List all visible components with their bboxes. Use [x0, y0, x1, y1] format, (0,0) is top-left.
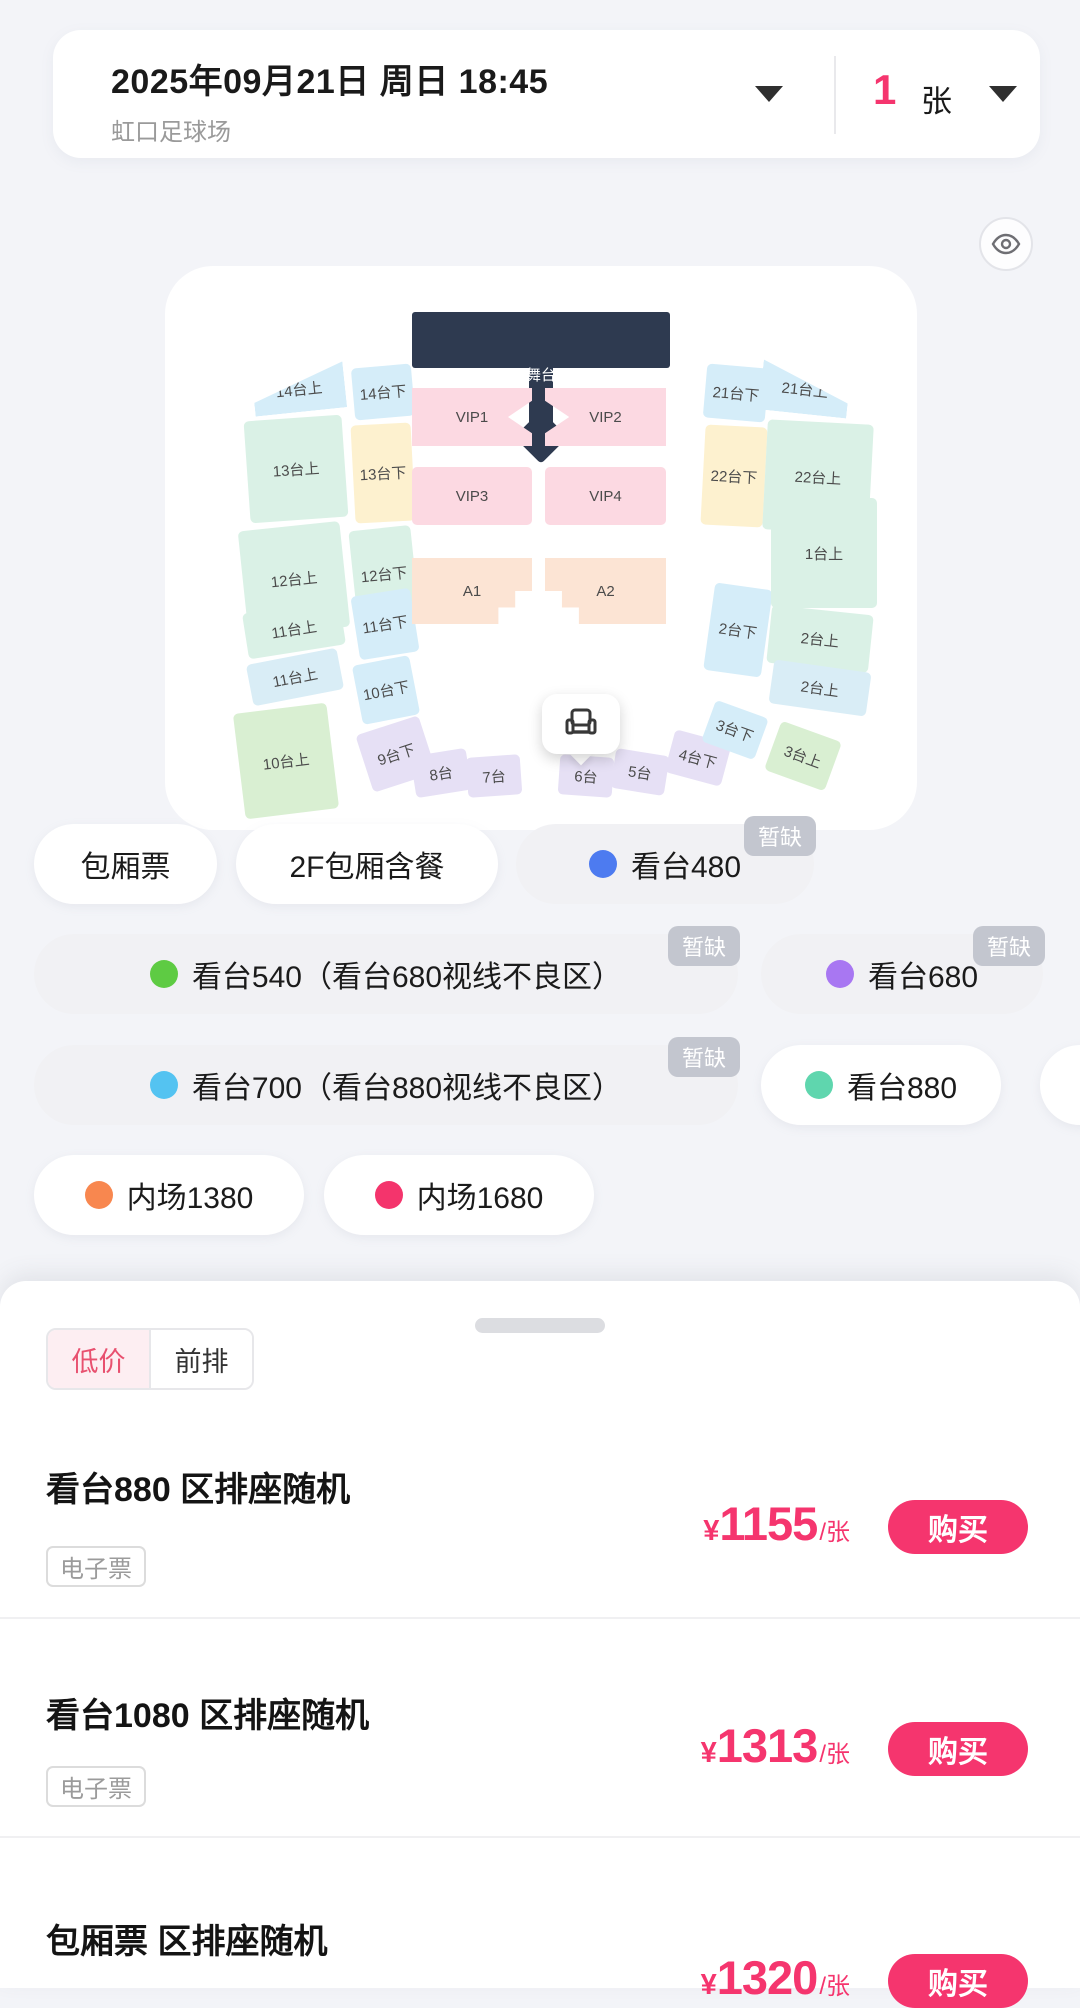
buy-button[interactable]: 购买	[888, 1500, 1028, 1554]
price-unit: /张	[819, 1966, 850, 2001]
listing-title: 看台1080 区排座随机	[46, 1688, 369, 1737]
price-tier-dot-icon	[805, 1071, 833, 1099]
buy-button[interactable]: 购买	[888, 1954, 1028, 2008]
price-tier-dot-icon	[85, 1181, 113, 1209]
seat-section-label: 2台下	[718, 617, 759, 643]
seat-section-s6[interactable]: 6台	[558, 754, 615, 798]
seat-section-s13d[interactable]: 13台下	[350, 422, 415, 523]
listing-price: ¥1313/张	[701, 1718, 850, 1773]
seat-section-s10d[interactable]: 10台下	[352, 655, 420, 725]
sold-out-badge: 暂缺	[668, 926, 740, 966]
ticket-page: { "header": { "date": "2025年09月21日 周日 18…	[0, 0, 1080, 1988]
sort-tab-0[interactable]: 低价	[48, 1330, 149, 1388]
listing-divider	[0, 1836, 1080, 1838]
seat-section-s2d[interactable]: 2台下	[703, 582, 773, 677]
seat-section-s5[interactable]: 5台	[610, 748, 670, 796]
selected-section-tooltip[interactable]	[542, 694, 620, 754]
seat-section-a1[interactable]: A1	[412, 558, 532, 624]
venue-name: 虹口足球场	[111, 112, 231, 147]
price-value: 1155	[719, 1496, 817, 1551]
session-header-card: 2025年09月21日 周日 18:45 虹口足球场 1 张	[53, 30, 1040, 158]
session-date[interactable]: 2025年09月21日 周日 18:45	[111, 54, 548, 103]
price-tier-dot-icon	[150, 1071, 178, 1099]
seat-map-card: 舞台 14台上13台上12台上11台上11台上10台上14台下13台下12台下1…	[165, 266, 917, 830]
quantity-dropdown-caret-icon[interactable]	[989, 86, 1017, 102]
seat-section-label: 14台下	[359, 380, 407, 405]
seat-section-vip3[interactable]: VIP3	[412, 467, 532, 525]
seat-section-label: 1台上	[805, 543, 843, 564]
currency-symbol: ¥	[703, 1515, 719, 1548]
sort-tab-1[interactable]: 前排	[149, 1330, 252, 1388]
sold-out-badge: 暂缺	[668, 1037, 740, 1077]
stage-block	[412, 312, 670, 368]
sold-out-badge: 暂缺	[744, 816, 816, 856]
seat-section-label: 12台上	[270, 566, 319, 592]
seat-section-a2[interactable]: A2	[545, 558, 666, 624]
seat-section-label: 2台上	[800, 627, 840, 652]
listing-title: 看台880 区排座随机	[46, 1462, 350, 1511]
eticket-tag: 电子票	[46, 1546, 146, 1587]
category-chip-label: 包厢票	[81, 842, 171, 886]
seat-section-s11d[interactable]: 11台下	[350, 588, 419, 661]
price-tier-dot-icon	[150, 960, 178, 988]
seat-section-label: 11台上	[271, 662, 320, 691]
seat-icon	[563, 707, 599, 741]
seat-section-label: 8台	[428, 761, 454, 785]
seat-section-label: 5台	[627, 760, 653, 784]
buy-button[interactable]: 购买	[888, 1722, 1028, 1776]
category-chip-label: 看台540（看台680视线不良区）	[192, 952, 622, 996]
sheet-drag-handle[interactable]	[475, 1318, 605, 1333]
seat-section-s13u[interactable]: 13台上	[244, 415, 349, 524]
seat-section-label: 21台下	[712, 381, 760, 406]
listing-title: 包厢票 区排座随机	[46, 1914, 327, 1963]
seat-section-label: 3台下	[713, 714, 756, 747]
seat-section-vip4[interactable]: VIP4	[545, 467, 666, 525]
listing-price: ¥1155/张	[703, 1496, 850, 1551]
category-chip-r2c2[interactable]: 看台680暂缺	[761, 934, 1043, 1014]
seat-section-s21u[interactable]: 21台上	[759, 360, 852, 419]
category-chip-r1c2[interactable]: 2F包厢含餐	[236, 824, 498, 904]
seat-section-s22d[interactable]: 22台下	[700, 424, 767, 527]
seat-section-label: 10台下	[361, 675, 411, 705]
listing-divider	[0, 1617, 1080, 1619]
seat-section-s3u[interactable]: 3台上	[764, 721, 842, 792]
seat-section-vip2[interactable]: VIP2	[545, 388, 666, 446]
currency-symbol: ¥	[701, 1969, 717, 2002]
price-tier-dot-icon	[589, 850, 617, 878]
price-tier-dot-icon	[826, 960, 854, 988]
seat-section-label: VIP2	[589, 409, 622, 426]
session-dropdown-caret-icon[interactable]	[755, 86, 783, 102]
category-chip-label: 看台880	[847, 1063, 957, 1107]
listing-price: ¥1320/张	[701, 1950, 850, 2005]
category-chip-r2c1[interactable]: 看台540（看台680视线不良区）暂缺	[34, 934, 738, 1014]
price-value: 1313	[717, 1718, 818, 1773]
category-chip-label: 看台700（看台880视线不良区）	[192, 1063, 622, 1107]
seat-section-s8[interactable]: 8台	[410, 748, 472, 798]
seat-section-label: VIP4	[589, 488, 622, 505]
seat-section-label: 11台上	[270, 615, 318, 643]
listings-sheet: 低价前排 看台880 区排座随机电子票¥1155/张购买看台1080 区排座随机…	[0, 1281, 1080, 1988]
seat-section-label: 3台上	[781, 740, 824, 773]
seat-section-label: 22台上	[794, 465, 842, 488]
ticket-quantity-unit: 张	[921, 76, 952, 121]
seat-section-label: 10台上	[262, 748, 311, 775]
seat-section-s10u[interactable]: 10台上	[233, 703, 339, 820]
category-chip-r3c3[interactable]	[1040, 1045, 1080, 1125]
seat-section-s21d[interactable]: 21台下	[703, 363, 769, 422]
price-value: 1320	[717, 1950, 818, 2005]
category-chip-r4c2[interactable]: 内场1680	[324, 1155, 594, 1235]
category-chip-r3c1[interactable]: 看台700（看台880视线不良区）暂缺	[34, 1045, 738, 1125]
ticket-quantity[interactable]: 1	[873, 66, 896, 114]
seat-section-s7[interactable]: 7台	[466, 754, 523, 798]
seat-section-label: 7台	[482, 765, 507, 788]
category-chip-r1c1[interactable]: 包厢票	[34, 824, 217, 904]
seat-section-s14d[interactable]: 14台下	[351, 363, 415, 420]
seat-section-label: A2	[596, 583, 614, 600]
price-unit: /张	[819, 1512, 850, 1547]
price-tier-dot-icon	[375, 1181, 403, 1209]
seat-section-label: 2台上	[800, 675, 841, 701]
sort-tabs: 低价前排	[46, 1328, 254, 1390]
eye-icon	[991, 233, 1021, 255]
stage-label: 舞台	[511, 364, 571, 385]
currency-symbol: ¥	[701, 1737, 717, 1770]
eticket-tag: 电子票	[46, 1766, 146, 1807]
category-chip-label: 内场1680	[417, 1173, 544, 1217]
seat-section-label: 13台上	[272, 457, 320, 481]
seat-section-label: 12台下	[360, 561, 409, 587]
header-divider	[834, 56, 836, 134]
seat-section-label: 11台下	[361, 610, 409, 638]
seat-section-label: 21台上	[781, 376, 830, 402]
category-chip-r1c3[interactable]: 看台480暂缺	[516, 824, 814, 904]
category-chip-label: 2F包厢含餐	[289, 842, 444, 886]
seat-section-label: A1	[463, 583, 481, 600]
seat-section-label: 22台下	[710, 464, 758, 487]
category-chip-label: 内场1380	[127, 1173, 254, 1217]
view-toggle-button[interactable]	[979, 217, 1033, 271]
seat-section-label: VIP1	[456, 409, 489, 426]
category-chip-label: 看台680	[868, 952, 978, 996]
seat-section-label: 13台下	[359, 461, 407, 484]
seat-section-label: VIP3	[456, 488, 489, 505]
seat-section-label: 4台下	[677, 743, 719, 773]
seat-section-s1u[interactable]: 1台上	[771, 498, 877, 608]
price-unit: /张	[819, 1734, 850, 1769]
sold-out-badge: 暂缺	[973, 926, 1045, 966]
seat-section-s14u[interactable]: 14台上	[251, 361, 347, 416]
category-chip-r3c2[interactable]: 看台880	[761, 1045, 1001, 1125]
seat-section-label: 6台	[574, 765, 599, 788]
seat-section-label: 14台上	[275, 376, 324, 402]
category-chip-r4c1[interactable]: 内场1380	[34, 1155, 304, 1235]
seat-section-vip1[interactable]: VIP1	[412, 388, 532, 446]
category-chip-label: 看台480	[631, 842, 741, 886]
